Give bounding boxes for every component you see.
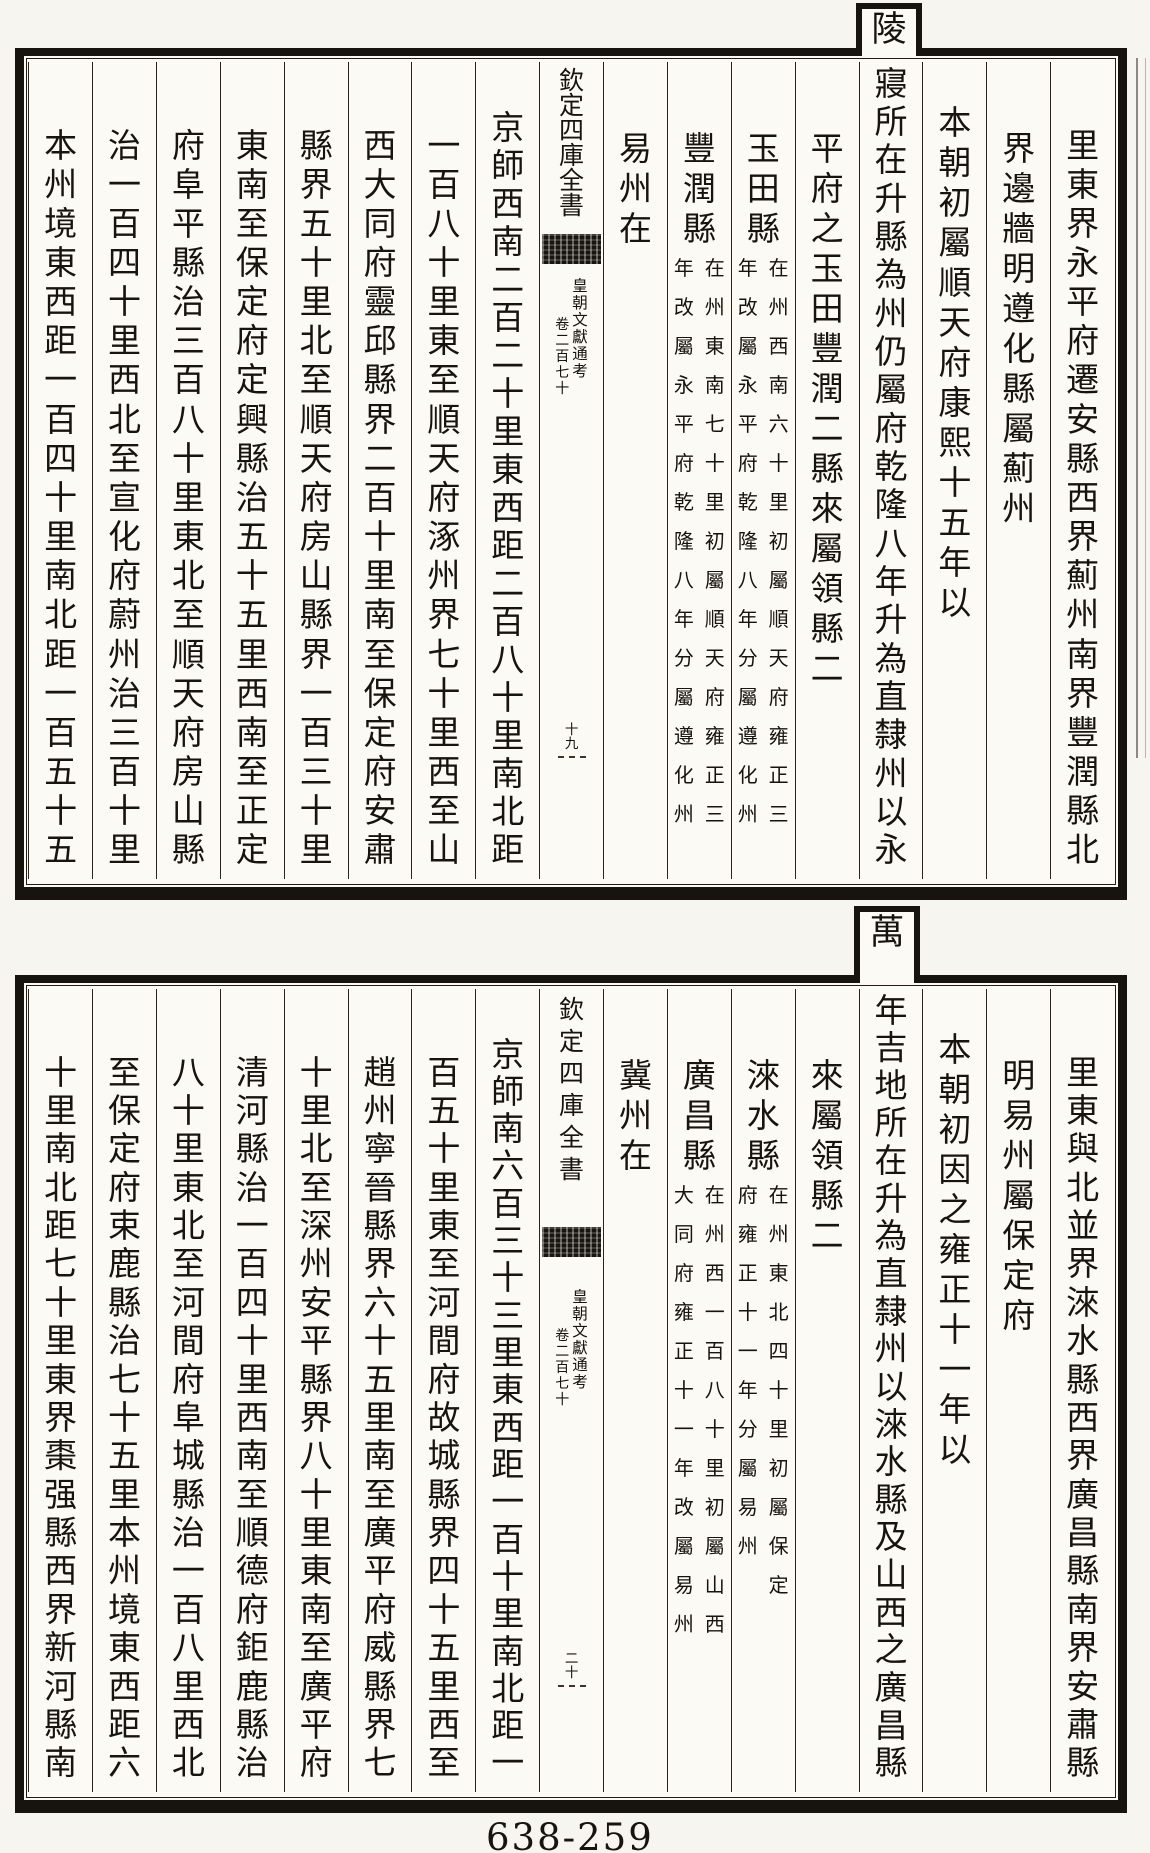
- column-text: 百五十里東至河間府故城縣界四十五里西至: [412, 989, 475, 1792]
- banxin-volume-title: 皇朝文獻通考: [572, 1289, 588, 1405]
- note-sub-column-right: 在州西南六十里初屬順天府雍正三: [764, 248, 794, 833]
- column-text: 一百八十里東至順天府涿州界七十里西至山: [412, 62, 475, 879]
- folio-rule: [558, 1685, 586, 1687]
- column-text: 府阜平縣治三百八十里東北至順天府房山縣: [157, 62, 220, 879]
- top-col-l3: 西大同府靈邱縣界二百十里南至保定府安肅: [348, 62, 412, 879]
- column-text: 界邊牆明遵化縣屬薊州: [987, 62, 1050, 879]
- column-text: 東南至保定府定興縣治五十五里西南至正定: [221, 62, 284, 879]
- note-sub-column-left: 府雍正十一年分屬易州: [733, 1175, 763, 1604]
- top-col-l6: 府阜平縣治三百八十里東北至順天府房山縣: [156, 62, 220, 879]
- bottom-col-l5: 清河縣治一百四十里西南至順德府鉅鹿縣治: [220, 989, 284, 1792]
- top-col-l5: 東南至保定府定興縣治五十五里西南至正定: [220, 62, 284, 879]
- top-col-r1: 里東界永平府遷安縣西界薊州南界豐潤縣北: [1050, 62, 1114, 879]
- bottom-col-r7: 廣昌縣在州西一百八十里初屬山西大同府雍正十一年改屬易州: [667, 989, 731, 1792]
- banxin-chapter-number: 卷二百七十: [555, 1325, 569, 1405]
- bottom-col-l8: 十里南北距七十里東界棗强縣西界新河縣南: [28, 989, 92, 1792]
- column-text: 至保定府束鹿縣治七十五里本州境東西距六: [93, 989, 156, 1792]
- column-text: 明易州屬保定府: [987, 989, 1050, 1792]
- banxin-folio-number: 十九: [558, 724, 586, 758]
- bottom-col-l7: 至保定府束鹿縣治七十五里本州境東西距六: [92, 989, 156, 1792]
- top-col-r7: 豐潤縣在州東南七十里初屬順天府雍正三年改屬永平府乾隆八年分屬遵化州: [667, 62, 731, 879]
- column-text: 趙州寧晉縣界六十五里南至廣平府威縣界七: [349, 989, 412, 1792]
- banxin-black-band: [542, 1227, 601, 1257]
- bottom-col-l3: 趙州寧晉縣界六十五里南至廣平府威縣界七: [348, 989, 412, 1792]
- text-block-bottom: 里東與北並界淶水縣西界廣昌縣南界安肅縣明易州屬保定府本朝初因之雍正十一年以年吉地…: [15, 975, 1127, 1813]
- top-col-r2: 界邊牆明遵化縣屬薊州: [986, 62, 1050, 879]
- note-sub-column-right: 在州東南七十里初屬順天府雍正三: [700, 248, 730, 833]
- bottom-col-r2: 明易州屬保定府: [986, 989, 1050, 1792]
- column-text: 治一百四十里西北至宣化府蔚州治三百十里: [93, 62, 156, 879]
- column-text: 冀州在: [604, 989, 667, 1792]
- reprint-page-number: 638-259: [486, 1816, 654, 1853]
- column-text: 平府之玉田豐潤二縣來屬領縣二: [796, 62, 859, 879]
- top-col-l4: 縣界五十里北至順天府房山縣界一百三十里: [284, 62, 348, 879]
- banxin-folio-number: 二十: [558, 1653, 586, 1687]
- banxin-volume-title: 皇朝文獻通考: [572, 278, 588, 394]
- column-text: 玉田縣在州西南六十里初屬順天府雍正三年改屬永平府乾隆八年分屬遵化州: [732, 62, 795, 879]
- bottom-col-r6: 淶水縣在州東北四十里初屬保定府雍正十一年分屬易州: [731, 989, 795, 1792]
- banxin-book-series-title: 欽定四庫全書: [559, 993, 584, 1185]
- column-text: 縣界五十里北至順天府房山縣界一百三十里: [285, 62, 348, 879]
- top-col-r4-tab-lingqin: 寢所在升縣為州仍屬府乾隆八年升為直隸州以永: [859, 62, 923, 879]
- bottom-center-column: 欽定四庫全書皇朝文獻通考卷二百七十二十: [539, 989, 603, 1792]
- interlinear-note: 在州東北四十里初屬保定府雍正十一年分屬易州: [732, 1175, 795, 1604]
- note-sub-column-right: 在州西一百八十里初屬山西: [700, 1175, 730, 1643]
- column-text: 本朝初屬順天府康熙十五年以: [923, 62, 986, 879]
- bottom-col-r4-tab-wannianjidi: 年吉地所在升為直隸州以淶水縣及山西之廣昌縣: [859, 989, 923, 1792]
- column-text: 寢所在升縣為州仍屬府乾隆八年升為直隸州以永: [860, 62, 923, 879]
- column-text: 清河縣治一百四十里西南至順德府鉅鹿縣治: [221, 989, 284, 1792]
- column-text: 來屬領縣二: [796, 989, 859, 1792]
- top-col-r6: 玉田縣在州西南六十里初屬順天府雍正三年改屬永平府乾隆八年分屬遵化州: [731, 62, 795, 879]
- column-text: 十里南北距七十里東界棗强縣西界新河縣南: [29, 989, 92, 1792]
- interlinear-note: 在州西一百八十里初屬山西大同府雍正十一年改屬易州: [668, 1175, 731, 1643]
- top-col-l1: 京師西南二百二十里東西距二百八十里南北距: [475, 62, 539, 879]
- bottom-col-l6: 八十里東北至河間府阜城縣治一百八里西北: [156, 989, 220, 1792]
- note-sub-column-left: 年改屬永平府乾隆八年分屬遵化州: [669, 248, 699, 833]
- bottom-col-r8: 冀州在: [603, 989, 667, 1792]
- column-text: 里東界永平府遷安縣西界薊州南界豐潤縣北: [1051, 62, 1114, 879]
- bottom-col-l4: 十里北至深州安平縣界八十里東南至廣平府: [284, 989, 348, 1792]
- taitou-tab-bottom: 萬: [854, 906, 920, 983]
- bottom-col-r5: 來屬領縣二: [795, 989, 859, 1792]
- column-text: 淶水縣在州東北四十里初屬保定府雍正十一年分屬易州: [732, 989, 795, 1792]
- column-text: 易州在: [604, 62, 667, 879]
- banxin-volume-group: 皇朝文獻通考卷二百七十: [540, 278, 603, 394]
- top-col-l2: 一百八十里東至順天府涿州界七十里西至山: [411, 62, 475, 879]
- folio-rule: [558, 756, 586, 758]
- column-text: 豐潤縣在州東南七十里初屬順天府雍正三年改屬永平府乾隆八年分屬遵化州: [668, 62, 731, 879]
- column-text: 八十里東北至河間府阜城縣治一百八里西北: [157, 989, 220, 1792]
- banxin-book-series-title: 欽定四庫全書: [559, 68, 584, 218]
- top-col-l7: 治一百四十里西北至宣化府蔚州治三百十里: [92, 62, 156, 879]
- taitou-tab-top: 陵: [856, 3, 922, 56]
- column-text: 年吉地所在升為直隸州以淶水縣及山西之廣昌縣: [860, 989, 923, 1792]
- interlinear-note: 在州東南七十里初屬順天府雍正三年改屬永平府乾隆八年分屬遵化州: [668, 248, 731, 833]
- book-scan-page: 里東界永平府遷安縣西界薊州南界豐潤縣北界邊牆明遵化縣屬薊州本朝初屬順天府康熙十五…: [0, 0, 1150, 1853]
- column-text: 廣昌縣在州西一百八十里初屬山西大同府雍正十一年改屬易州: [668, 989, 731, 1792]
- column-text: 京師西南二百二十里東西距二百八十里南北距: [476, 62, 539, 879]
- column-text: 本朝初因之雍正十一年以: [923, 989, 986, 1792]
- note-sub-column-left: 年改屬永平府乾隆八年分屬遵化州: [733, 248, 763, 833]
- text-block-top: 里東界永平府遷安縣西界薊州南界豐潤縣北界邊牆明遵化縣屬薊州本朝初屬順天府康熙十五…: [15, 48, 1127, 900]
- column-text: 本州境東西距一百四十里南北距一百五十五: [29, 62, 92, 879]
- bottom-col-l2: 百五十里東至河間府故城縣界四十五里西至: [411, 989, 475, 1792]
- column-text: 西大同府靈邱縣界二百十里南至保定府安肅: [349, 62, 412, 879]
- interlinear-note: 在州西南六十里初屬順天府雍正三年改屬永平府乾隆八年分屬遵化州: [732, 248, 795, 833]
- columns-top: 里東界永平府遷安縣西界薊州南界豐潤縣北界邊牆明遵化縣屬薊州本朝初屬順天府康熙十五…: [28, 62, 1114, 879]
- tab-character: 陵: [871, 13, 906, 48]
- note-sub-column-right: 在州東北四十里初屬保定: [764, 1175, 794, 1604]
- top-col-l8: 本州境東西距一百四十里南北距一百五十五: [28, 62, 92, 879]
- bottom-col-r1: 里東與北並界淶水縣西界廣昌縣南界安肅縣: [1050, 989, 1114, 1792]
- column-text: 京師南六百三十三里東西距一百十里南北距一: [476, 989, 539, 1792]
- column-text: 十里北至深州安平縣界八十里東南至廣平府: [285, 989, 348, 1792]
- top-col-r5: 平府之玉田豐潤二縣來屬領縣二: [795, 62, 859, 879]
- scan-edge-artifact: [1136, 58, 1146, 758]
- banxin-black-band: [542, 234, 601, 264]
- top-center-column: 欽定四庫全書皇朝文獻通考卷二百七十十九: [539, 62, 603, 879]
- column-text: 里東與北並界淶水縣西界廣昌縣南界安肅縣: [1051, 989, 1114, 1792]
- bottom-col-r3: 本朝初因之雍正十一年以: [922, 989, 986, 1792]
- banxin-volume-group: 皇朝文獻通考卷二百七十: [540, 1289, 603, 1405]
- top-col-r8: 易州在: [603, 62, 667, 879]
- tab-character: 萬: [869, 916, 904, 951]
- note-sub-column-left: 大同府雍正十一年改屬易州: [669, 1175, 699, 1643]
- bottom-col-l1: 京師南六百三十三里東西距一百十里南北距一: [475, 989, 539, 1792]
- columns-bottom: 里東與北並界淶水縣西界廣昌縣南界安肅縣明易州屬保定府本朝初因之雍正十一年以年吉地…: [28, 989, 1114, 1792]
- banxin-chapter-number: 卷二百七十: [555, 314, 569, 394]
- top-col-r3: 本朝初屬順天府康熙十五年以: [922, 62, 986, 879]
